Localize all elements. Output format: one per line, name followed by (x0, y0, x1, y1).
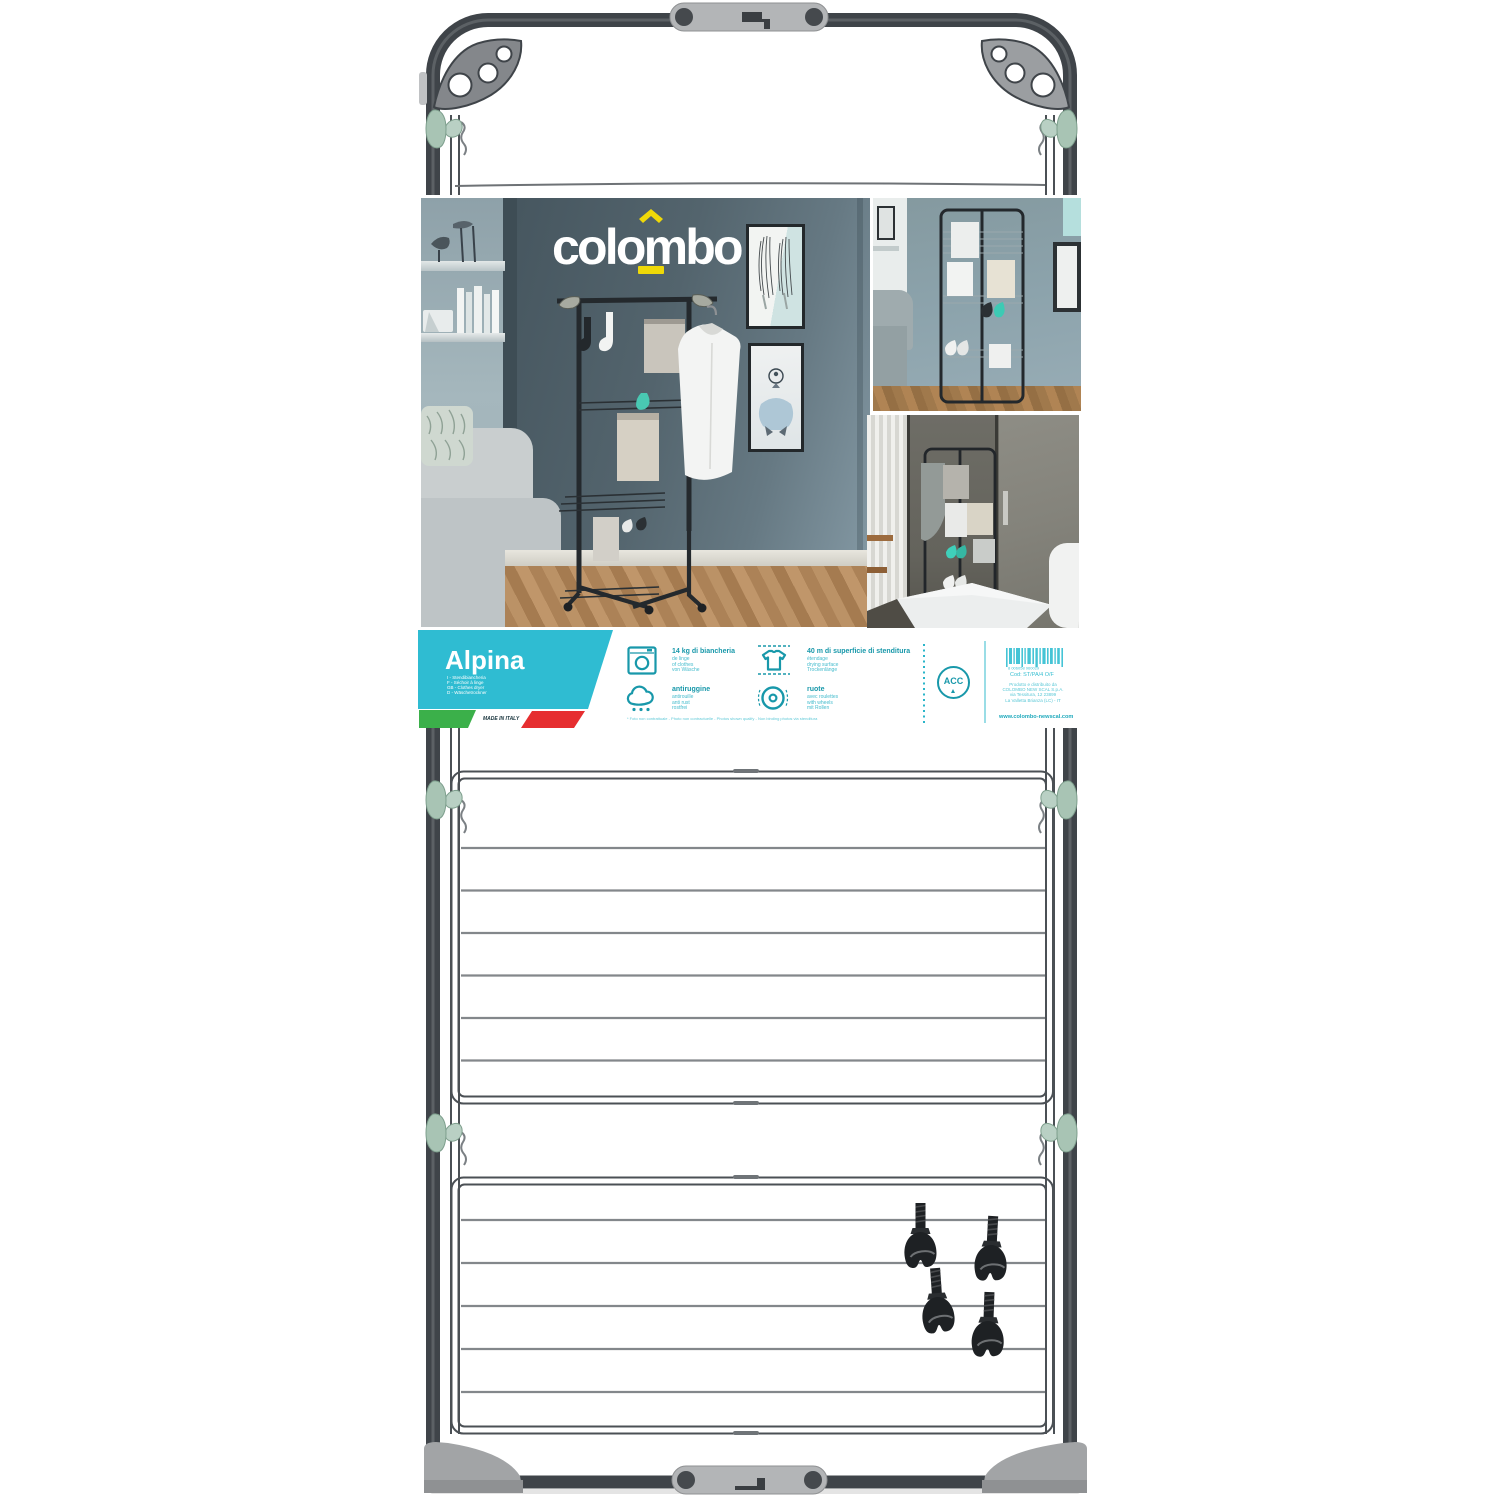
svg-text:8 006058 960029: 8 006058 960029 (1008, 666, 1040, 670)
